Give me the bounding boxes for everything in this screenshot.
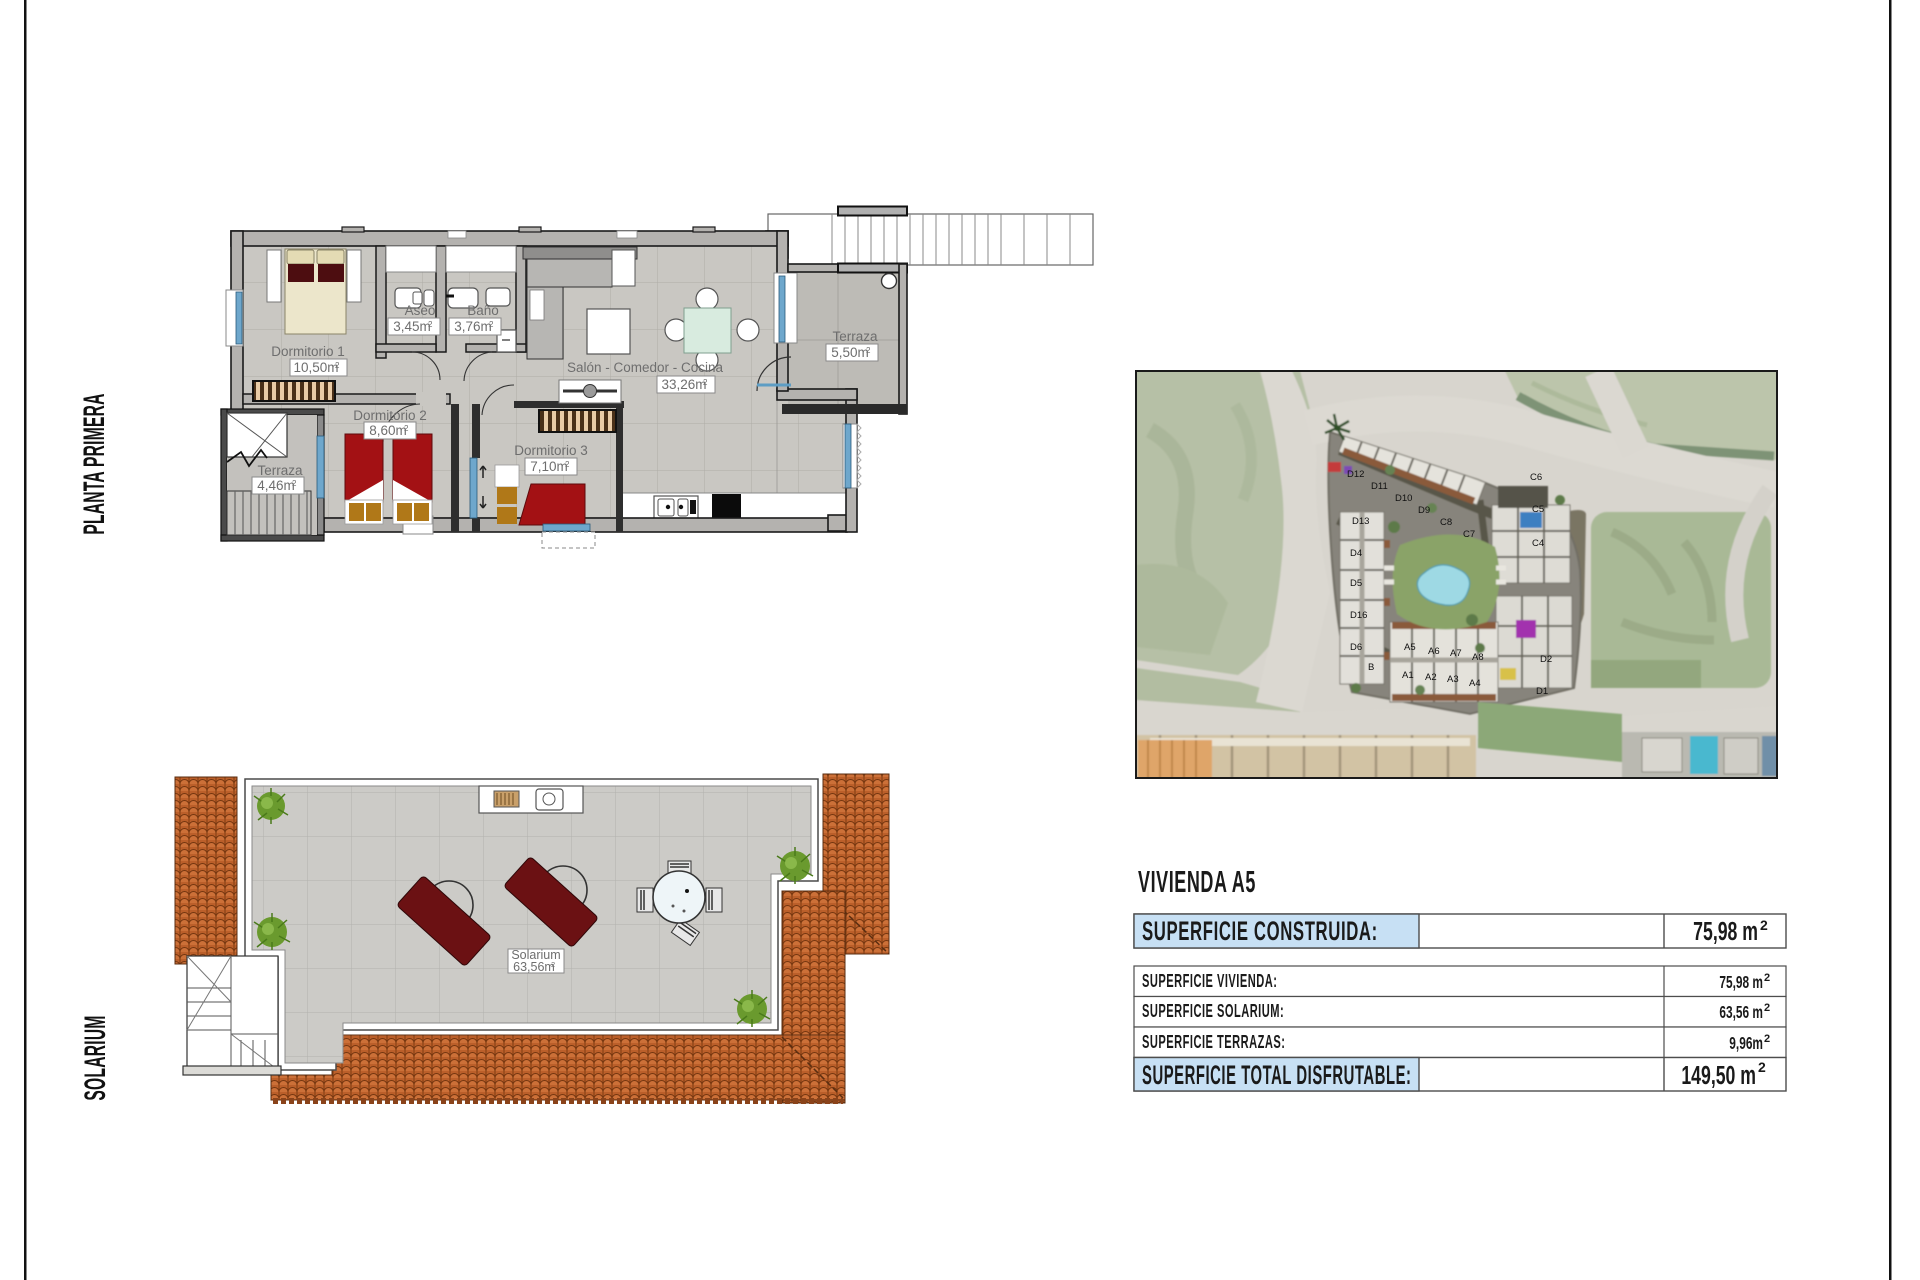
svg-text:D9: D9	[1418, 505, 1430, 516]
svg-text:8,60m: 8,60m	[369, 423, 407, 438]
svg-text:2: 2	[551, 960, 555, 969]
svg-text:C4: C4	[1532, 538, 1544, 549]
svg-text:Baño: Baño	[467, 303, 499, 318]
svg-text:D11: D11	[1371, 481, 1388, 492]
svg-text:A7: A7	[1450, 648, 1462, 659]
svg-text:A2: A2	[1425, 672, 1437, 683]
svg-text:SUPERFICIE TERRAZAS:: SUPERFICIE TERRAZAS:	[1142, 1032, 1285, 1053]
svg-text:2: 2	[703, 378, 708, 387]
svg-text:C8: C8	[1440, 517, 1452, 528]
svg-text:149,50 m: 149,50 m	[1681, 1061, 1756, 1090]
svg-text:A1: A1	[1402, 670, 1414, 681]
svg-text:A6: A6	[1428, 646, 1440, 657]
svg-text:B: B	[1368, 662, 1374, 673]
svg-text:D5: D5	[1350, 578, 1362, 589]
svg-text:D2: D2	[1540, 654, 1552, 665]
svg-text:SOLARIUM: SOLARIUM	[79, 1015, 113, 1100]
svg-text:63,56m: 63,56m	[513, 960, 555, 974]
svg-text:D6: D6	[1350, 642, 1362, 653]
svg-text:2: 2	[1760, 917, 1768, 933]
svg-text:D1: D1	[1536, 686, 1548, 697]
svg-text:75,98 m: 75,98 m	[1693, 917, 1758, 946]
svg-text:Dormitorio 2: Dormitorio 2	[353, 408, 427, 423]
svg-text:D10: D10	[1395, 493, 1412, 504]
svg-text:2: 2	[292, 479, 297, 488]
svg-text:A3: A3	[1447, 674, 1459, 685]
svg-text:PLANTA PRIMERA: PLANTA PRIMERA	[78, 393, 112, 534]
svg-text:Terraza: Terraza	[257, 463, 303, 478]
svg-text:C6: C6	[1530, 472, 1542, 483]
svg-text:A8: A8	[1472, 652, 1484, 663]
svg-text:10,50m: 10,50m	[293, 360, 338, 375]
svg-text:75,98 m: 75,98 m	[1719, 973, 1763, 993]
svg-text:Aseo: Aseo	[405, 303, 436, 318]
svg-text:SUPERFICIE VIVIENDA:: SUPERFICIE VIVIENDA:	[1142, 971, 1277, 992]
svg-text:2: 2	[866, 346, 871, 355]
svg-text:D16: D16	[1350, 610, 1367, 621]
svg-text:2: 2	[1764, 1033, 1770, 1045]
svg-text:D4: D4	[1350, 548, 1362, 559]
svg-text:3,76m: 3,76m	[454, 319, 492, 334]
svg-text:SUPERFICIE CONSTRUIDA:: SUPERFICIE CONSTRUIDA:	[1142, 916, 1378, 946]
svg-text:D13: D13	[1352, 516, 1369, 527]
svg-text:4,46m: 4,46m	[257, 478, 295, 493]
svg-text:Salón - Comedor - Cocina: Salón - Comedor - Cocina	[567, 360, 724, 375]
svg-text:2: 2	[1764, 972, 1770, 984]
svg-text:2: 2	[565, 460, 570, 469]
svg-text:SUPERFICIE SOLARIUM:: SUPERFICIE SOLARIUM:	[1142, 1001, 1284, 1022]
svg-text:A4: A4	[1469, 678, 1481, 689]
svg-text:A5: A5	[1404, 642, 1416, 653]
svg-text:C5: C5	[1532, 504, 1544, 515]
svg-text:2: 2	[428, 320, 433, 329]
svg-text:Dormitorio 3: Dormitorio 3	[514, 443, 588, 458]
svg-text:C7: C7	[1463, 529, 1475, 540]
svg-text:2: 2	[335, 361, 340, 370]
svg-text:63,56 m: 63,56 m	[1719, 1003, 1763, 1023]
svg-text:9,96m: 9,96m	[1729, 1034, 1763, 1054]
svg-text:3,45m: 3,45m	[393, 319, 431, 334]
svg-text:33,26m: 33,26m	[661, 377, 706, 392]
svg-text:5,50m: 5,50m	[831, 345, 869, 360]
svg-text:2: 2	[489, 320, 494, 329]
svg-text:2: 2	[1758, 1059, 1766, 1075]
svg-text:Dormitorio 1: Dormitorio 1	[271, 344, 345, 359]
svg-text:SUPERFICIE TOTAL DISFRUTABLE:: SUPERFICIE TOTAL DISFRUTABLE:	[1142, 1059, 1412, 1090]
svg-text:2: 2	[404, 424, 409, 433]
svg-text:Terraza: Terraza	[832, 329, 878, 344]
svg-text:D12: D12	[1347, 469, 1364, 480]
svg-text:VIVIENDA A5: VIVIENDA A5	[1138, 865, 1256, 899]
svg-text:7,10m: 7,10m	[530, 459, 568, 474]
svg-text:2: 2	[1764, 1002, 1770, 1014]
